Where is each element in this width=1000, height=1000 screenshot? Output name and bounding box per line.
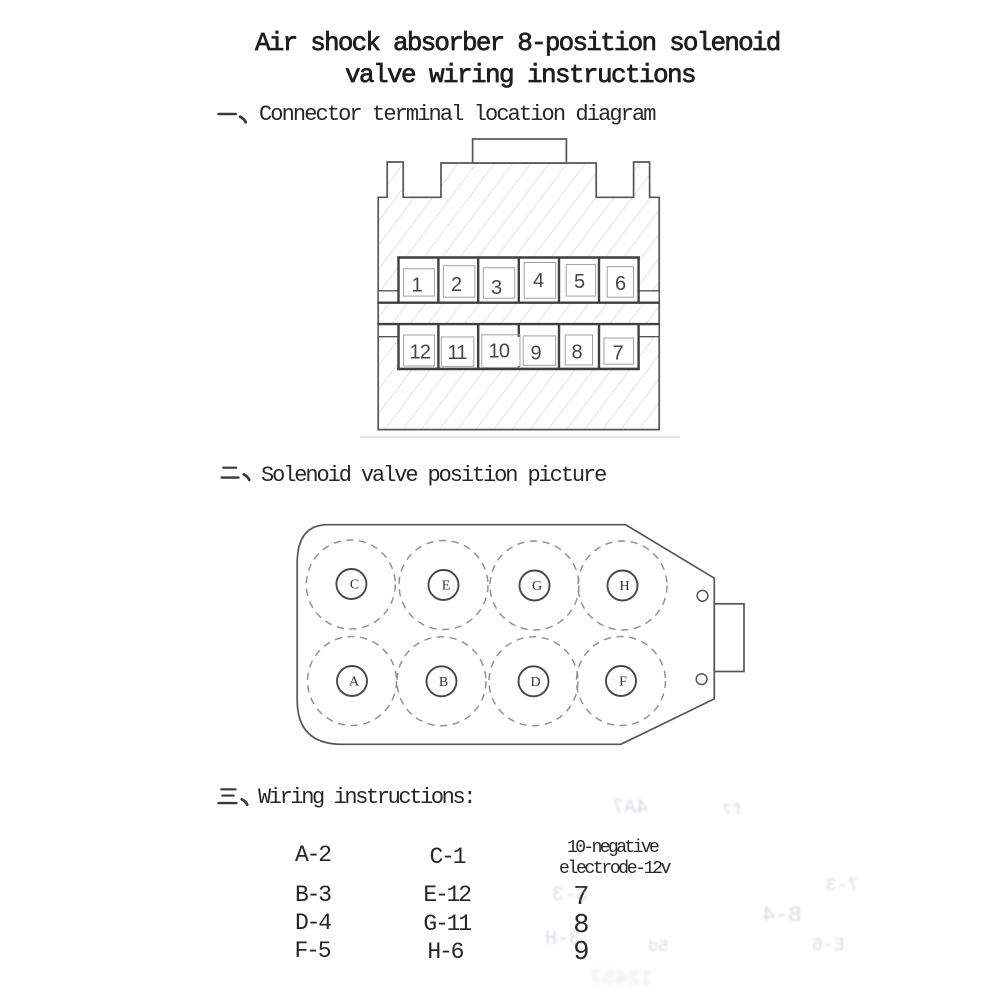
svg-text:E: E [442,579,451,594]
svg-text:7: 7 [613,343,624,365]
svg-text:D: D [530,675,540,690]
svg-text:6: 6 [615,273,626,295]
svg-text:9: 9 [531,343,542,365]
svg-text:B: B [439,675,448,690]
svg-text:12: 12 [410,342,431,364]
svg-text:3: 3 [491,277,502,299]
svg-text:1: 1 [412,275,423,297]
svg-text:G: G [532,579,542,594]
svg-text:H: H [619,579,629,594]
svg-text:F: F [619,675,627,690]
svg-text:A: A [349,675,360,690]
svg-text:10: 10 [489,341,510,363]
svg-text:C: C [350,578,359,593]
svg-text:5: 5 [574,271,585,293]
svg-text:4: 4 [533,270,544,292]
svg-text:2: 2 [451,274,462,296]
svg-text:11: 11 [448,342,468,364]
svg-text:8: 8 [572,342,583,364]
